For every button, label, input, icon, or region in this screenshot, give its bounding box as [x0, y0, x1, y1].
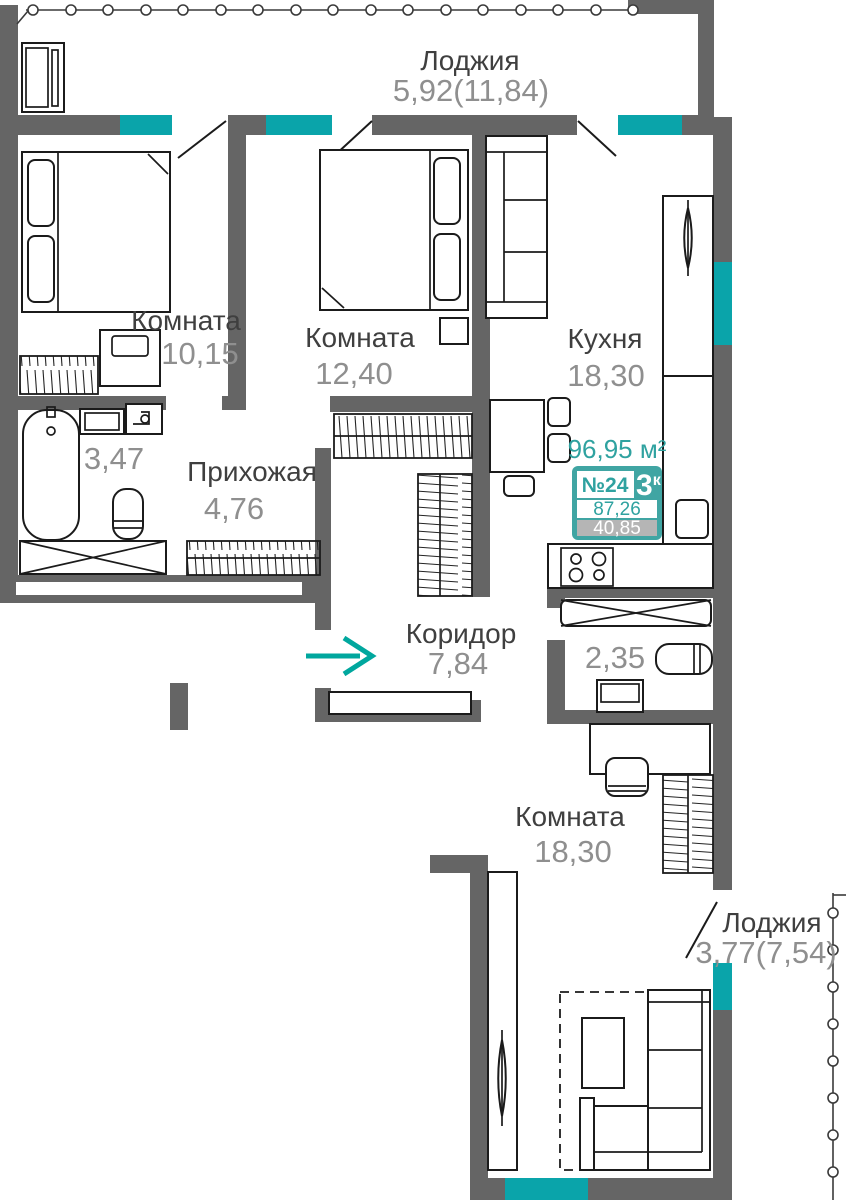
- chair: [548, 398, 570, 426]
- room-label: Комната: [515, 801, 625, 832]
- window-segment: [505, 1178, 588, 1200]
- living-area-value: 87,26: [593, 499, 641, 520]
- room-area: 2,35: [585, 640, 645, 675]
- room-area: 3,47: [84, 441, 144, 476]
- bathroom-sink: [80, 409, 124, 434]
- window-segment: [713, 262, 732, 345]
- loggia-glazing-top: [17, 5, 638, 24]
- faucet-symbol: [126, 404, 162, 434]
- loggia-cabinet: [22, 43, 64, 112]
- floor-plan-page: Лоджия 5,92(11,84) Комната 10,15 Комната…: [0, 0, 846, 1200]
- wardrobe-tall-hatched: [418, 474, 472, 596]
- toilet: [113, 489, 143, 539]
- room-label: Кухня: [568, 323, 643, 354]
- room-area: 3,77(7,54): [695, 935, 836, 970]
- floor-plan: Лоджия 5,92(11,84) Комната 10,15 Комната…: [0, 0, 846, 1200]
- entrance-door-leaf: [329, 692, 471, 714]
- storage-cabinet-crossed: [561, 600, 711, 626]
- dresser: [100, 330, 160, 386]
- apartment-badge: 96,95 м² №24 3к 87,26 40,85: [568, 434, 667, 540]
- wardrobe-hatched: [334, 414, 472, 458]
- desk-wardrobe-hatched: [663, 775, 713, 873]
- kitchen-counter: [663, 376, 713, 544]
- bed-small: [22, 152, 170, 312]
- kitchen-sink: [676, 500, 708, 538]
- door-swing: [578, 121, 616, 156]
- washing-machine: [20, 541, 166, 574]
- bathtub: [23, 407, 79, 540]
- extra-area-value: 40,85: [593, 518, 641, 539]
- room-area: 4,76: [204, 491, 264, 526]
- entrance-arrow-icon: [306, 638, 372, 674]
- kitchen-table: [490, 398, 570, 496]
- nightstand: [440, 318, 468, 344]
- room-area: 10,15: [161, 336, 239, 371]
- bed-mid: [320, 150, 468, 310]
- living-wardrobe: [488, 872, 517, 1170]
- window-segment: [120, 115, 172, 135]
- living-table: [582, 1018, 624, 1088]
- room-label: Лоджия: [722, 907, 821, 938]
- storage-shoe-bench: [656, 644, 712, 674]
- room-label: Комната: [305, 322, 415, 353]
- stove-counter: [548, 544, 713, 588]
- room-area: 7,84: [428, 646, 488, 681]
- room-label: Коридор: [406, 618, 517, 649]
- storage-nightstand: [597, 680, 643, 712]
- room-label: Комната: [131, 305, 241, 336]
- room-label: Прихожая: [187, 456, 317, 487]
- room-area: 18,30: [534, 834, 612, 869]
- window-segment: [266, 115, 332, 135]
- room-area: 12,40: [315, 356, 393, 391]
- kitchen-tall-cabinet: [663, 196, 713, 376]
- door-swing: [178, 121, 226, 158]
- apartment-number: №24: [582, 474, 629, 497]
- window-segment: [713, 963, 732, 1010]
- shelf-hatched: [20, 356, 98, 394]
- chair: [504, 476, 534, 496]
- total-area-label: 96,95 м²: [568, 434, 667, 464]
- kitchen-sofa: [486, 136, 547, 318]
- room-area: 18,30: [567, 358, 645, 393]
- hallway-wardrobe-hatched: [187, 541, 320, 575]
- window-segment: [618, 115, 682, 135]
- room-area: 5,92(11,84): [393, 73, 549, 108]
- room-label: Лоджия: [420, 45, 519, 76]
